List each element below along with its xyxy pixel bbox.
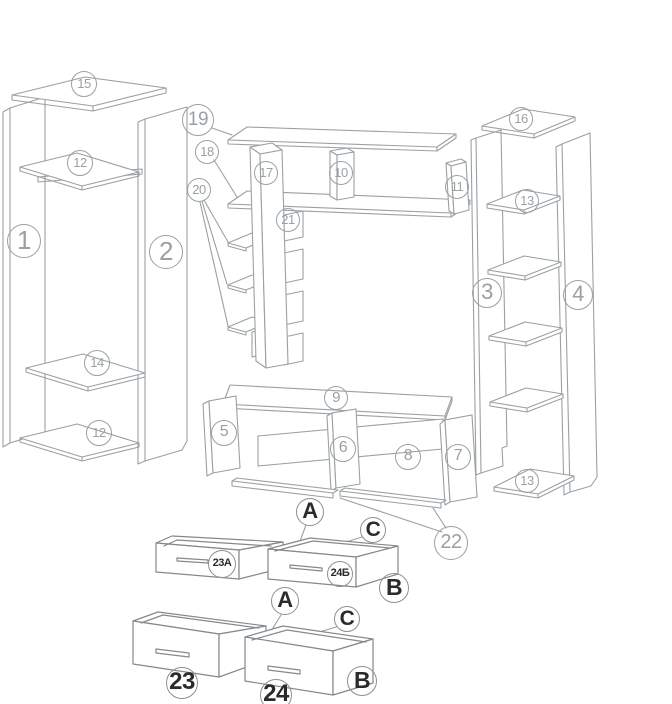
leader-20-b [202,201,227,284]
rail-1 [232,478,338,498]
callout-part-2: 2 [149,235,183,269]
leader-19 [212,128,232,135]
strip-21-b [284,249,303,283]
callout-part-17: 17 [254,161,278,185]
panel-1-edge [3,108,10,447]
panel-1-face [10,97,45,443]
callout-part-12-upper: 12 [67,150,93,176]
callout-part-9: 9 [324,386,348,410]
rail-2 [340,488,446,508]
callout-part-21: 21 [276,208,300,232]
furniture-assembly-diagram: 15 12 1 2 14 12 19 18 20 17 21 10 11 16 … [0,0,672,704]
leader-18 [214,160,237,197]
callout-corner-b-row1: B [379,573,409,603]
callout-part-14: 14 [84,350,110,376]
callout-part-5: 5 [211,420,237,446]
callout-part-10: 10 [329,161,353,185]
callout-part-18: 18 [195,140,219,164]
callout-part-20: 20 [187,178,211,202]
label-drawer-24b: 24Б [327,561,353,587]
callout-part-19: 19 [182,104,214,136]
callout-corner-a-row1: A [296,498,324,526]
shelf-19-top [228,127,456,147]
callout-part-7: 7 [445,444,471,470]
leader-22-a [433,508,446,528]
callout-part-12-lower: 12 [86,420,112,446]
label-drawer-23a: 23A [208,550,236,578]
callout-corner-c-row2: C [334,606,360,632]
callout-part-16: 16 [509,107,533,131]
callout-part-1: 1 [7,224,41,258]
callout-part-15: 15 [71,71,97,97]
callout-corner-a-row2: A [271,587,299,615]
leader-20-c [200,202,228,326]
panel-2-face [145,107,187,461]
label-drawer-23: 23 [166,667,198,699]
callout-part-3: 3 [472,278,502,308]
callout-part-13-lower: 13 [515,469,539,493]
callout-part-6: 6 [330,436,356,462]
callout-part-4: 4 [563,280,593,310]
callout-corner-b-row2: B [347,666,377,696]
callout-corner-c-row1: C [360,517,386,543]
panel-4-face [562,133,597,492]
label-drawer-24: 24 [260,679,292,704]
callout-part-22: 22 [434,526,468,560]
callout-part-11: 11 [445,175,469,199]
callout-part-8: 8 [395,444,421,470]
callout-part-13-upper: 13 [515,189,539,213]
wardrobe-group [3,77,187,464]
